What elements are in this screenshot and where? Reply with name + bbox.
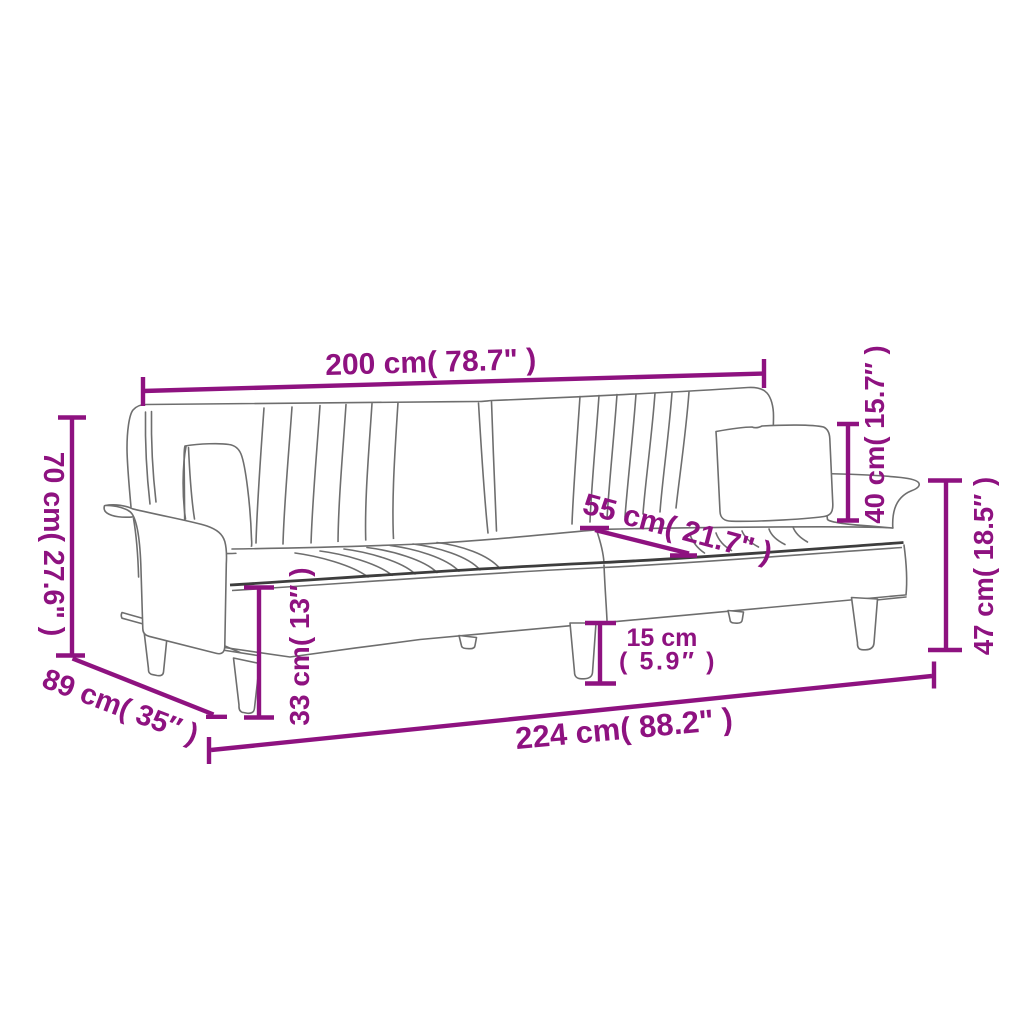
svg-text:47 cm( 18.5″ ): 47 cm( 18.5″ ) <box>968 477 999 655</box>
svg-text:( 5.9″ ): ( 5.9″ ) <box>619 648 717 676</box>
svg-text:33 cm( 13″ ): 33 cm( 13″ ) <box>284 567 315 725</box>
svg-text:70 cm( 27.6" ): 70 cm( 27.6" ) <box>37 452 69 637</box>
svg-text:40 cm( 15.7″ ): 40 cm( 15.7″ ) <box>859 345 890 523</box>
svg-text:200 cm( 78.7" ): 200 cm( 78.7" ) <box>325 343 537 382</box>
